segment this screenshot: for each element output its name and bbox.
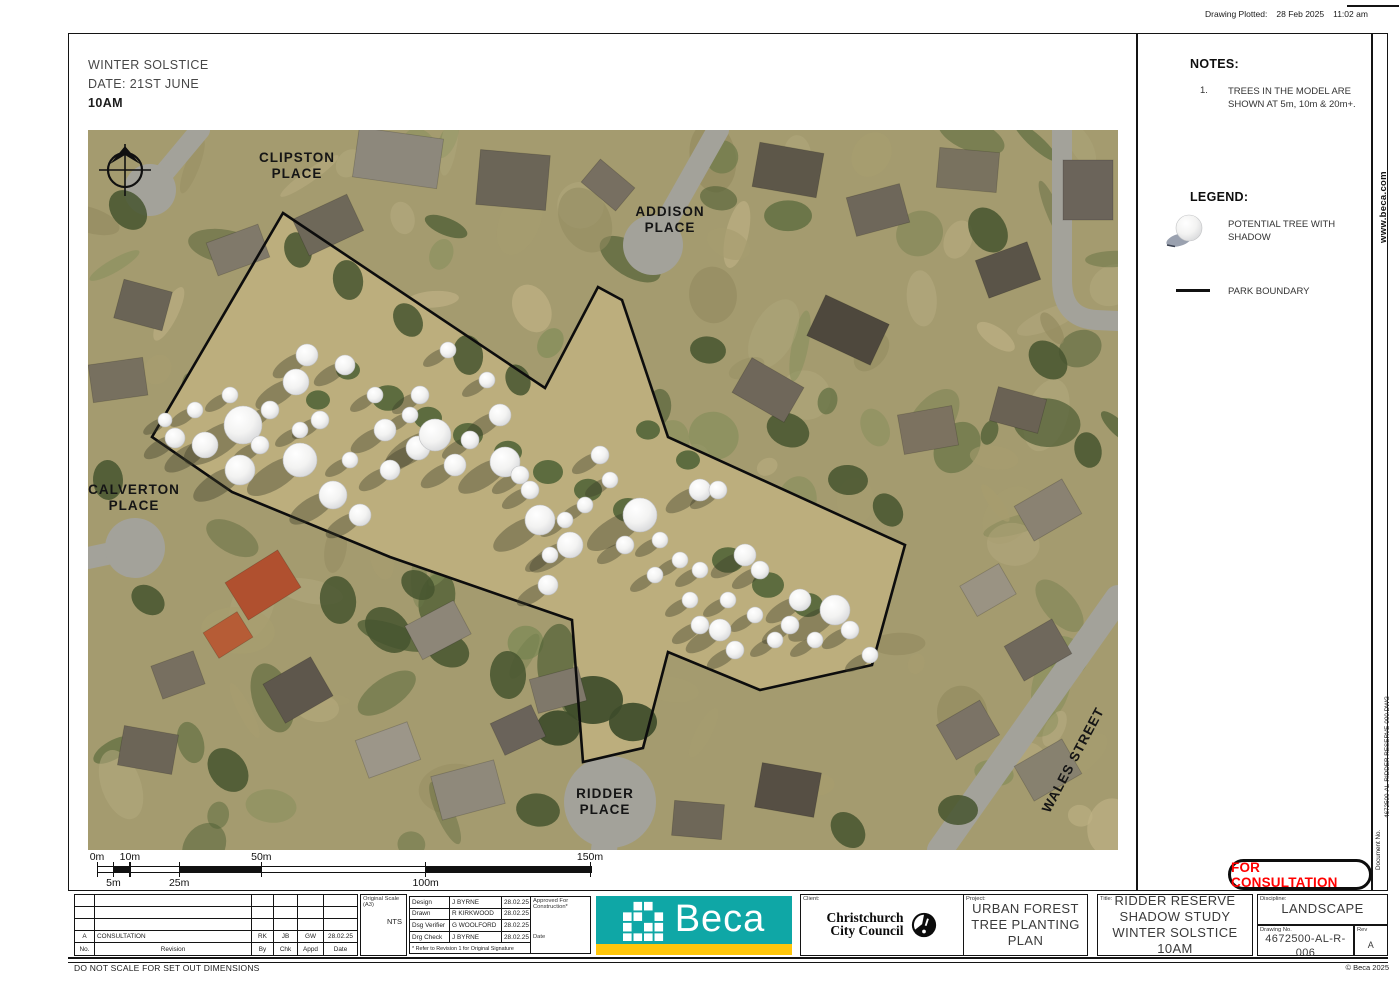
potential-tree (557, 512, 573, 528)
name-design: J BYRNE (450, 897, 502, 909)
potential-tree (489, 404, 511, 426)
beca-wordmark: Beca (675, 900, 766, 938)
date-design: 28.02.25 (502, 897, 532, 909)
name-drawn: R KIRKWOOD (450, 909, 502, 921)
drawing-sheet: Drawing Plotted: 28 Feb 2025 11:02 am WI… (0, 0, 1399, 989)
rev-col-by: By (252, 943, 274, 955)
potential-tree (222, 387, 238, 403)
titleblock-rule-2 (68, 962, 1388, 963)
drawing-no-label: Drawing No. (1258, 926, 1294, 934)
potential-tree (511, 466, 529, 484)
potential-tree (296, 344, 318, 366)
potential-tree (682, 592, 698, 608)
role-check: Drg Check (410, 932, 450, 944)
plot-date: 28 Feb 2025 (1276, 9, 1324, 19)
scalebar-tick (590, 862, 591, 877)
edge-strip-divider (1371, 33, 1373, 891)
beca-logo-stripe (596, 944, 792, 955)
potential-tree (692, 562, 708, 578)
name-check: J BYRNE (450, 932, 502, 944)
legend-boundary-label: PARK BOUNDARY (1228, 285, 1378, 298)
rev-label: Rev (1355, 926, 1369, 934)
potential-tree (367, 387, 383, 403)
scalebar-label-bottom: 100m (413, 877, 439, 889)
title-label: Title: (1098, 895, 1114, 903)
potential-tree (419, 419, 451, 451)
potential-tree (862, 647, 878, 663)
scalebar-filled-segment (426, 866, 590, 873)
legend-heading: LEGEND: (1190, 190, 1248, 204)
scenario-block: WINTER SOLSTICE DATE: 21ST JUNE 10AM (88, 56, 209, 112)
rev-a-no: A (75, 931, 95, 943)
potential-tree (251, 436, 269, 454)
potential-tree (720, 592, 736, 608)
potential-tree (261, 401, 279, 419)
potential-tree (767, 632, 783, 648)
personnel-table: Design J BYRNE 28.02.25 Drawn R KIRKWOOD… (409, 896, 531, 954)
trim-mark (1347, 5, 1399, 7)
scalebar-label-top: 10m (120, 851, 140, 863)
date-verifier: 28.02.25 (502, 920, 532, 932)
potential-tree (602, 472, 618, 488)
potential-tree (577, 497, 593, 513)
potential-tree (616, 536, 634, 554)
note-1-text: TREES IN THE MODEL ARE SHOWN AT 5m, 10m … (1228, 85, 1360, 112)
scalebar-filled-segment (113, 866, 129, 873)
role-verifier: Dsg Verifier (410, 920, 450, 932)
potential-tree (461, 431, 479, 449)
plot-label: Drawing Plotted: (1205, 9, 1267, 19)
beca-mark-icon (623, 899, 665, 941)
beca-website: www.beca.com (1378, 171, 1389, 243)
drawing-no-box: Drawing No. 4672500-AL-R-006 (1257, 925, 1354, 956)
potential-tree (311, 411, 329, 429)
potential-tree (538, 575, 558, 595)
scalebar-tick (97, 862, 98, 877)
potential-tree (807, 632, 823, 648)
scalebar-tick (261, 862, 262, 877)
project-box: Project: URBAN FOREST TREE PLANTING PLAN (963, 894, 1088, 956)
ccc-crest-icon (910, 911, 938, 939)
rev-col-revision: Revision (95, 943, 252, 955)
potential-tree (444, 454, 466, 476)
scalebar-tick (113, 862, 114, 877)
date-check: 28.02.25 (502, 932, 532, 944)
rev-a-description: CONSULTATION (95, 931, 252, 943)
notes-heading: NOTES: (1190, 57, 1239, 71)
potential-tree (283, 369, 309, 395)
do-not-scale-note: DO NOT SCALE FOR SET OUT DIMENSIONS (74, 963, 260, 973)
project-line-2: TREE PLANTING (971, 917, 1080, 933)
potential-tree (652, 532, 668, 548)
potential-tree (158, 413, 172, 427)
title-line-2: SHADOW STUDY (1120, 909, 1231, 925)
potential-tree (542, 547, 558, 563)
client-name-2: City Council (826, 925, 903, 938)
potential-tree (525, 505, 555, 535)
scale-box: Original Scale (A3) NTS (360, 894, 407, 956)
street-label: ADDISONPLACE (635, 204, 704, 235)
project-label: Project: (964, 895, 988, 903)
potential-tree (820, 595, 850, 625)
potential-tree (751, 561, 769, 579)
scalebar-label-bottom: 25m (169, 877, 189, 889)
client-label: Client: (801, 895, 821, 903)
potential-tree (557, 532, 583, 558)
rev-a-appd: GW (298, 931, 324, 943)
consultation-stamp: FOR CONSULTATION (1228, 859, 1372, 890)
potential-tree (380, 460, 400, 480)
potential-tree (165, 428, 185, 448)
rev-col-date: Date (324, 943, 357, 955)
beca-logo-background: Beca (596, 896, 792, 944)
scenario-time: 10AM (88, 94, 209, 113)
date-drawn: 28.02.25 (502, 909, 532, 921)
project-line-1: URBAN FOREST (972, 901, 1079, 917)
approved-label: Approved For Construction* (531, 897, 590, 911)
potential-tree (623, 498, 657, 532)
potential-tree (192, 432, 218, 458)
revision-table: A CONSULTATION RK JB GW 28.02.25 No. Rev… (74, 894, 358, 956)
client-logo: Christchurch City Council (801, 895, 963, 955)
scenario-line2: DATE: 21ST JUNE (88, 75, 209, 94)
role-drawn: Drawn (410, 909, 450, 921)
potential-tree (591, 446, 609, 464)
tree-with-shadow-icon (1166, 212, 1208, 252)
rev-box: Rev A (1354, 925, 1388, 956)
beca-logo: Beca (596, 896, 792, 955)
scalebar-filled-segment (179, 866, 261, 873)
document-number-value: 4672500-AL-RIDDER RESERVE-000.DWG (1384, 696, 1391, 818)
scale-value: NTS (361, 909, 406, 926)
client-box: Client: Christchurch City Council (800, 894, 964, 956)
signature-footnote: * Refer to Revision 1 for Original Signa… (410, 943, 532, 955)
potential-tree (747, 607, 763, 623)
title-box: Title: RIDDER RESERVE SHADOW STUDY WINTE… (1097, 894, 1253, 956)
potential-tree (709, 481, 727, 499)
approved-date-label: Date (531, 933, 547, 941)
boundary-line-icon (1176, 289, 1210, 292)
potential-tree (342, 452, 358, 468)
scenario-line1: WINTER SOLSTICE (88, 56, 209, 75)
scalebar-tick (425, 862, 426, 877)
scalebar-tick (179, 862, 180, 877)
rev-col-chk: Chk (274, 943, 298, 955)
rev-col-appd: Appd (298, 943, 324, 955)
scalebar-label-top: 50m (251, 851, 271, 863)
approved-box: Approved For Construction* Date (530, 896, 591, 954)
potential-tree (319, 481, 347, 509)
potential-tree (374, 419, 396, 441)
title-line-1: RIDDER RESERVE (1115, 893, 1236, 909)
potential-tree (841, 621, 859, 639)
potential-tree (349, 504, 371, 526)
aerial-map: CLIPSTONPLACEADDISONPLACECALVERTONPLACER… (88, 130, 1118, 850)
potential-tree (647, 567, 663, 583)
potential-tree (781, 616, 799, 634)
potential-tree (335, 355, 355, 375)
potential-tree (689, 479, 711, 501)
potential-tree (479, 372, 495, 388)
potential-tree (411, 386, 429, 404)
scalebar-label-top: 150m (577, 851, 603, 863)
name-verifier: G WOOLFORD (450, 920, 502, 932)
discipline-box: Discipline: LANDSCAPE (1257, 894, 1388, 925)
potential-tree (292, 422, 308, 438)
plot-time: 11:02 am (1333, 9, 1368, 19)
panel-divider (1136, 33, 1138, 891)
potential-tree (789, 589, 811, 611)
scale-bar: 0m10m50m150m5m25m100m (97, 853, 597, 891)
rev-col-no: No. (75, 943, 95, 955)
rev-a-chk: JB (274, 931, 298, 943)
potential-tree (734, 544, 756, 566)
title-line-3: WINTER SOLSTICE 10AM (1098, 925, 1252, 958)
rev-a-by: RK (252, 931, 274, 943)
potential-tree (440, 342, 456, 358)
potential-tree (691, 616, 709, 634)
scale-label: Original Scale (A3) (361, 895, 406, 909)
potential-tree (187, 402, 203, 418)
potential-tree (225, 455, 255, 485)
scalebar-label-bottom: 5m (106, 877, 121, 889)
copyright: © Beca 2025 (1290, 963, 1389, 972)
street-label: RIDDERPLACE (576, 786, 634, 817)
note-1-number: 1. (1200, 85, 1208, 96)
project-line-3: PLAN (1008, 933, 1044, 949)
potential-tree (283, 443, 317, 477)
legend-tree-label: POTENTIAL TREE WITH SHADOW (1228, 218, 1378, 245)
document-number-label: Document No. (1375, 830, 1382, 870)
scalebar-label-top: 0m (90, 851, 105, 863)
potential-tree (672, 552, 688, 568)
scalebar-tick (129, 862, 130, 877)
potential-tree (521, 481, 539, 499)
rev-a-date: 28.02.25 (324, 931, 357, 943)
discipline-label: Discipline: (1258, 895, 1288, 903)
plot-timestamp: Drawing Plotted: 28 Feb 2025 11:02 am (1205, 9, 1368, 19)
potential-tree (726, 641, 744, 659)
potential-tree (709, 619, 731, 641)
potential-tree (402, 407, 418, 423)
role-design: Design (410, 897, 450, 909)
